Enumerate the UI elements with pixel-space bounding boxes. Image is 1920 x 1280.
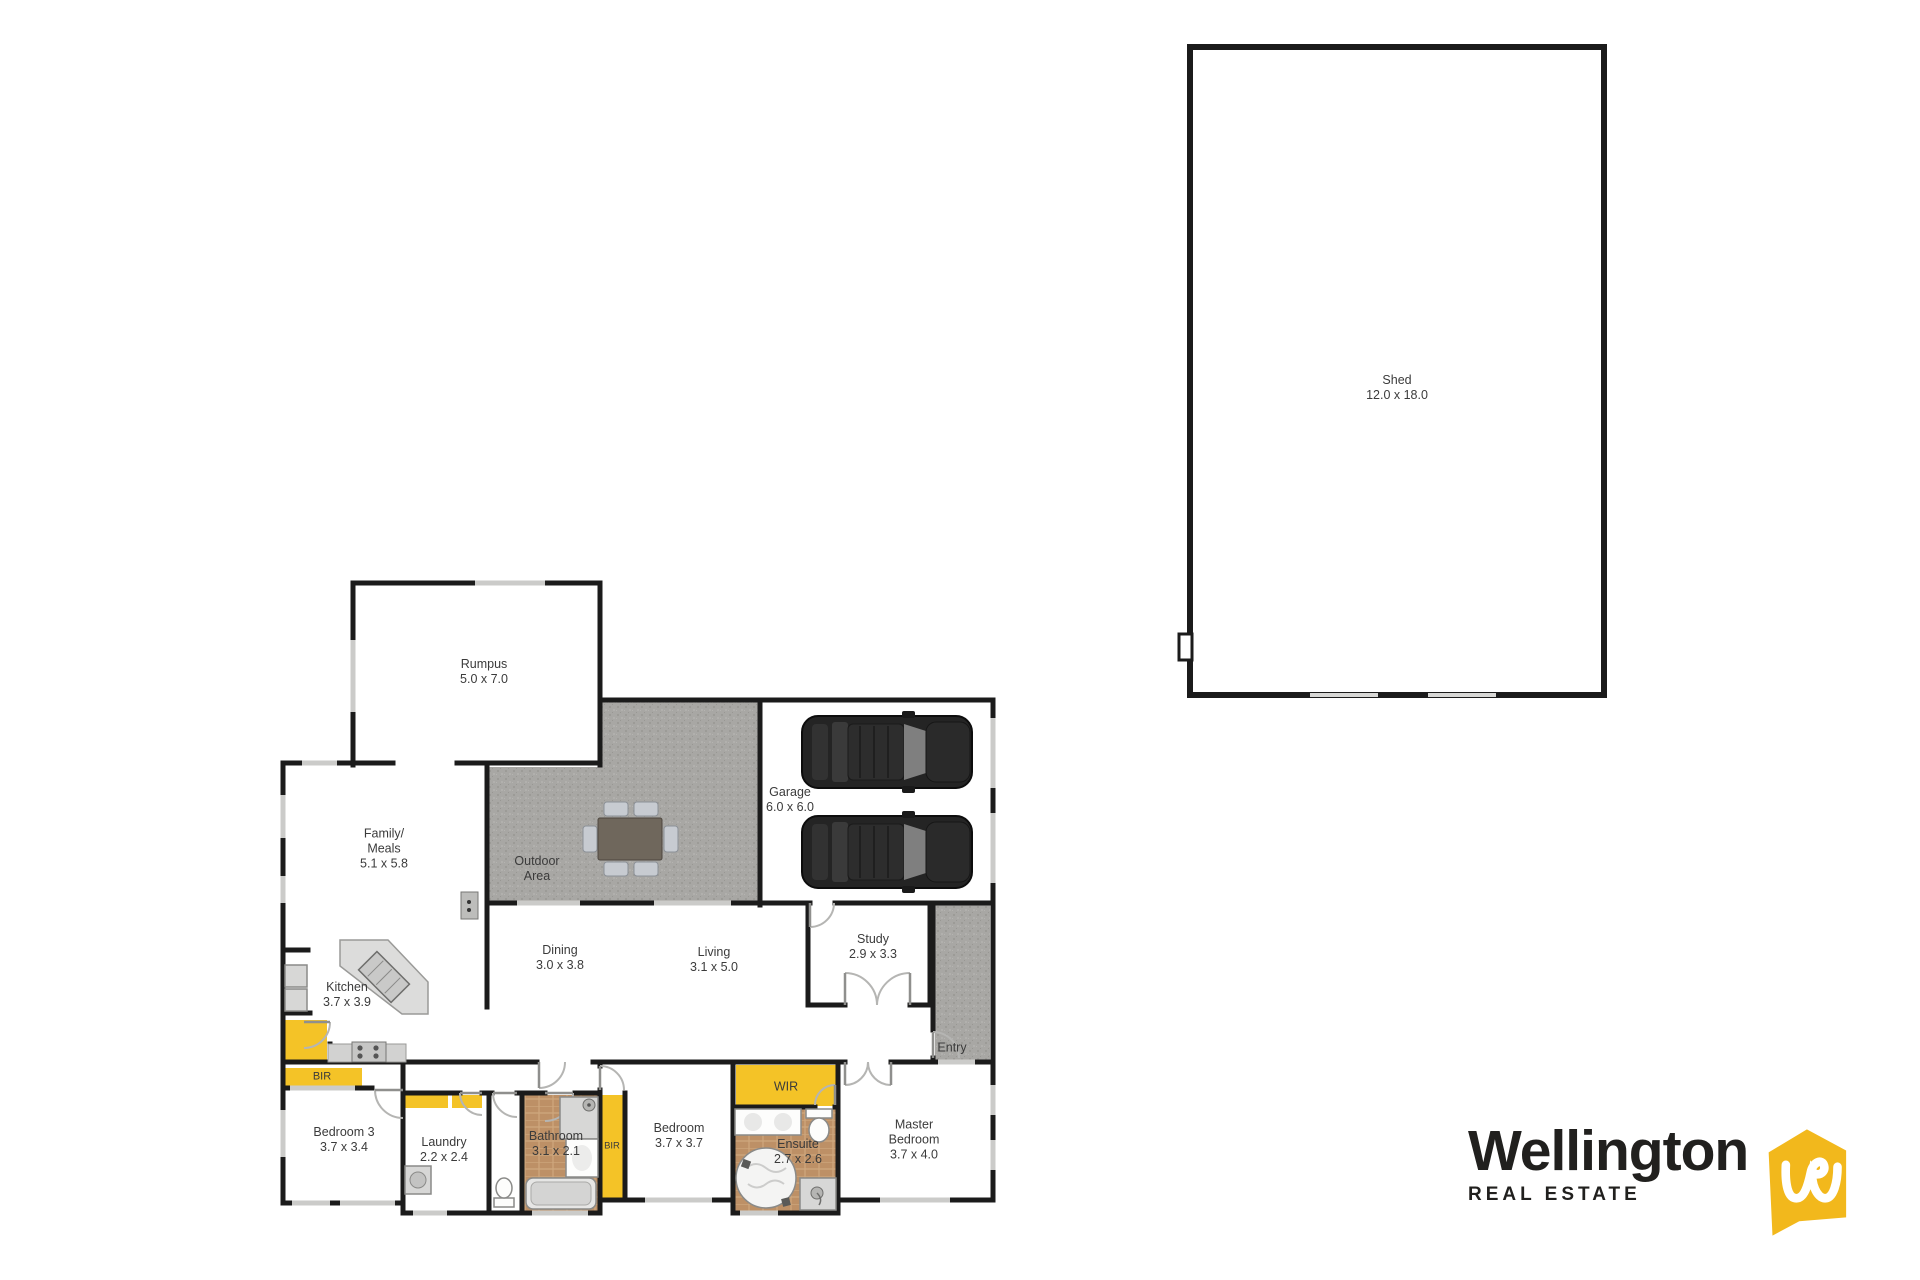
toilet-wc (494, 1178, 514, 1207)
floorplan-page: Rumpus5.0 x 7.0 OutdoorArea Garage6.0 x … (0, 0, 1920, 1280)
room-label-living: Living3.1 x 5.0 (690, 945, 738, 975)
washing-machine (405, 1166, 431, 1194)
room-label-kitchen: Kitchen3.7 x 3.9 (323, 980, 371, 1010)
brand-logo-text: Wellington REAL ESTATE (1468, 1122, 1748, 1206)
brand-name: Wellington (1468, 1122, 1748, 1182)
room-label-bathroom: Bathroom3.1 x 2.1 (529, 1129, 583, 1159)
room-label-wir: WIR (774, 1080, 798, 1095)
fireplace (461, 892, 478, 919)
room-label-rumpus: Rumpus5.0 x 7.0 (460, 657, 508, 687)
room-label-garage: Garage6.0 x 6.0 (766, 785, 814, 815)
floor-plan-graphic (0, 0, 1920, 1280)
room-label-laundry: Laundry2.2 x 2.4 (420, 1135, 468, 1165)
car-2 (802, 811, 972, 893)
room-label-outdoor-area: OutdoorArea (514, 854, 559, 884)
room-label-shed: Shed12.0 x 18.0 (1366, 373, 1428, 403)
brand-house-icon (1761, 1124, 1849, 1242)
room-label-bedroom3: Bedroom 33.7 x 3.4 (313, 1125, 374, 1155)
fridge (285, 965, 307, 1011)
kitchen-counter-oven (328, 1042, 406, 1062)
brand-logo: Wellington REAL ESTATE (1468, 1122, 1849, 1242)
room-label-study: Study2.9 x 3.3 (849, 932, 897, 962)
room-label-bedroom2: Bedroom3.7 x 3.7 (654, 1121, 705, 1151)
room-label-dining: Dining3.0 x 3.8 (536, 943, 584, 973)
entry-floor (935, 905, 990, 1060)
room-label-bir-bedroom2: BIR (604, 1140, 620, 1151)
room-label-family-meals: Family/Meals5.1 x 5.8 (360, 827, 408, 872)
room-label-entry: Entry (937, 1041, 966, 1056)
car-1 (802, 711, 972, 793)
shed-outline (1179, 47, 1604, 695)
room-label-bir-bedroom3: BIR (313, 1070, 331, 1083)
linen-cabinet (452, 1095, 482, 1108)
shed-door-notch (1179, 634, 1192, 660)
room-label-master-bedroom: MasterBedroom3.7 x 4.0 (889, 1118, 940, 1163)
brand-tagline: REAL ESTATE (1468, 1184, 1748, 1206)
laundry-cabinet (405, 1095, 448, 1108)
room-label-ensuite: Ensuite2.7 x 2.6 (774, 1137, 822, 1167)
